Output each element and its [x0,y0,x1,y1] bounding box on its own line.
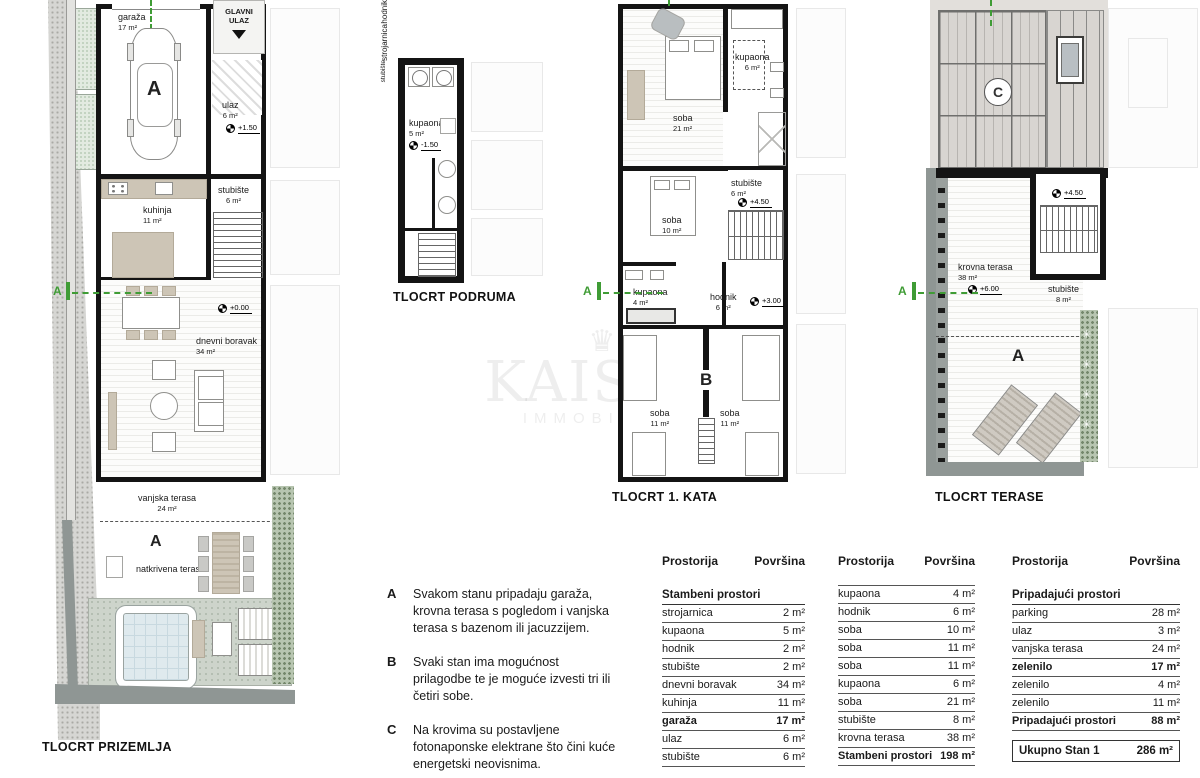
pillow [654,180,670,190]
col-header: Prostorija [1012,554,1068,570]
col-header: Prostorija [838,554,894,570]
table-row: vanjska terasa 24 m² [1012,641,1180,659]
section-marker-a: A [583,284,592,298]
level-marker: +4.50 [1052,188,1086,199]
table-row: soba 11 m² [838,640,975,658]
row-label: hodnik [662,641,694,658]
ghost-plan [792,4,852,480]
lounger [238,608,276,640]
room-label: soba [662,215,682,225]
pillow [669,40,689,52]
row-value: 17 m² [776,713,805,730]
plan-caption: TLOCRT PRIZEMLJA [42,740,172,754]
table-row: kupaona 6 m² [838,676,975,694]
retaining-wall [55,684,295,704]
col-header: Prostorija [662,554,718,570]
level-marker: +0.00 [218,303,252,314]
row-value: 28 m² [1152,605,1180,622]
bathtub [626,308,676,324]
chair [144,286,158,296]
section-bar [66,282,70,300]
row-label: ulaz [1012,623,1032,640]
plan-terasa: C +4.50 stubište 8 m² krovna terasa 38 m… [880,0,1200,520]
table-row: stubište 8 m² [838,712,975,730]
bed [623,335,657,401]
room-area: 6 m² [226,196,241,205]
note-key: C [387,722,399,773]
pool [116,606,196,688]
toilet [770,88,784,98]
side-table [212,622,232,656]
table-kat: Prostorija Površina kupaona 4 m² hodnik … [838,554,975,766]
note-key: B [387,654,399,705]
section-line [990,0,992,26]
entrance-arrow-icon [232,30,246,39]
col-header: Površina [924,554,975,570]
table-row: zelenilo 11 m² [1012,695,1180,713]
note-key: A [387,586,399,637]
row-label: kupaona [662,623,704,640]
row-label: garaža [662,713,697,730]
washer-icon [408,67,430,87]
room-label: stubište [731,178,762,188]
plan-prizemlje: GLAVNI ULAZ garaža 17 m² A ulaz 6 m² +1.… [0,0,345,778]
row-value: 24 m² [1152,641,1180,658]
room-area: 4 m² [633,298,648,307]
pillow [694,40,714,52]
round-table [150,392,178,420]
row-value: 4 m² [1158,677,1180,694]
table-row: kuhinja 11 m² [662,695,805,713]
table-row: kupaona 5 m² [662,623,805,641]
bed [632,432,666,476]
row-label: strojarnica [662,605,713,622]
roof-label: C [984,78,1012,106]
media-unit [108,392,117,450]
room-area: 6 m² [745,63,760,72]
table-row: soba 11 m² [838,658,975,676]
room-label: kuhinja [143,205,172,215]
note-item: A Svakom stanu pripadaju garaža, krovna … [387,586,627,637]
section-line [72,292,152,294]
table-row: Stambeni prostori 198 m² [838,748,975,766]
row-value: 4 m² [953,586,975,603]
chair [126,286,140,296]
table-row: parking 28 m² [1012,605,1180,623]
stairs [1040,205,1098,253]
row-label: Pripadajući prostori [1012,713,1116,730]
stairs [728,210,784,260]
outdoor-kitchen [106,556,123,578]
level-dot-icon [738,198,747,207]
glavni-ulaz-label-2: ULAZ [229,16,249,25]
row-value: 34 m² [777,677,805,694]
outdoor-chair [243,556,254,572]
outdoor-chair [243,536,254,552]
plan-caption: TLOCRT 1. KATA [612,490,717,504]
section-line [603,292,663,294]
level-marker: +4.50 [738,197,772,208]
level-marker: +1.50 [226,123,260,134]
unit-label: A [1012,346,1024,366]
row-label: soba [838,622,862,639]
unit-label: A [150,533,162,551]
room-area: 6 m² [223,111,238,120]
stairs [213,212,263,278]
pillow [674,180,690,190]
row-value: 2 m² [783,641,805,658]
chair [126,330,140,340]
path-edge [66,0,76,520]
plan-caption: TLOCRT TERASE [935,490,1044,504]
retaining-wall [932,462,1084,476]
lounger [238,644,276,676]
armchair [152,360,176,380]
room-area: 11 m² [143,216,162,225]
row-value: 2 m² [783,605,805,622]
room-label: soba [720,408,740,418]
row-value: 88 m² [1151,713,1180,730]
note-item: C Na krovima su postavljene fotonaponske… [387,722,627,773]
level-dot-icon [218,304,227,313]
table-row: kupaona 4 m² [838,586,975,604]
row-value: 21 m² [947,694,975,711]
section-bar [597,282,601,300]
row-value: 8 m² [953,712,975,729]
row-value: 6 m² [953,676,975,693]
boiler-icon [438,196,456,214]
outdoor-chair [198,576,209,592]
row-value: 6 m² [783,749,805,766]
retaining-wall [926,168,936,476]
plan-kat1: soba 21 m² kupaona 6 m² soba 10 m² stubi… [570,0,890,520]
row-label: zelenilo [1012,695,1049,712]
room-label: dnevni boravak [196,336,257,346]
sofa-seat [198,376,224,400]
drain-band [936,178,948,462]
note-item: B Svaki stan ima mogućnost prilagodbe te… [387,654,627,705]
room-area: 17 m² [118,23,137,32]
table-row: stubište 6 m² [662,749,805,767]
room-label: ulaz [222,100,239,110]
bed [745,432,779,476]
row-value: 38 m² [947,730,975,747]
outdoor-chair [198,536,209,552]
ghost-plan [465,58,550,282]
pool-step [192,620,205,658]
row-value: 6 m² [783,731,805,748]
room-area: 8 m² [1056,295,1071,304]
plan-podrum: kupaona 5 m² -1.50 hodnik strojarnica st… [380,0,580,320]
chair [144,330,158,340]
row-label: kupaona [838,676,880,693]
row-value: 6 m² [953,604,975,621]
unit-label: A [147,78,161,101]
plan-sheet: ♛ KAISER IMMOBILIEN GLAVNI ULAZ [0,0,1200,778]
armchair [152,432,176,452]
row-label: dnevni boravak [662,677,737,694]
col-header: Površina [1129,554,1180,570]
row-value: 3 m² [1158,623,1180,640]
row-label: Stambeni prostori [838,748,932,765]
glavni-ulaz-label-1: GLAVNI [225,7,253,16]
row-label: kupaona [838,586,880,603]
room-label: hodnik [380,0,389,24]
row-label: stubište [838,712,876,729]
terrace-divider [100,521,280,522]
room-label: stubište [218,185,249,195]
total-box: Ukupno Stan 1 286 m² [1012,740,1180,762]
shaft [758,112,786,166]
row-value: 11 m² [1153,695,1180,712]
ghost-plan [1108,8,1200,478]
table-row: dnevni boravak 34 m² [662,677,805,695]
section-marker-a: A [898,284,907,298]
note-text: Svakom stanu pripadaju garaža, krovna te… [413,586,618,637]
table-row: stubište 2 m² [662,659,805,677]
row-label: soba [838,658,862,675]
table-row: strojarnica 2 m² [662,605,805,623]
note-text: Na krovima su postavljene fotonaponske e… [413,722,618,773]
room-area: 21 m² [673,124,692,133]
glavni-ulaz-box: GLAVNI ULAZ [213,0,265,54]
chair [162,330,176,340]
row-label: soba [838,640,862,657]
level-marker: -1.50 [409,140,441,151]
table-row: zelenilo 17 m² [1012,659,1180,677]
table-row: hodnik 2 m² [662,641,805,659]
level-dot-icon [409,141,418,150]
row-value: 10 m² [947,622,975,639]
table-row: soba 21 m² [838,694,975,712]
level-marker: +3.00 [750,296,784,307]
level-dot-icon [226,124,235,133]
variant-label: B [697,370,715,390]
sink [625,270,643,280]
table-row: garaža 17 m² [662,713,805,731]
row-label: parking [1012,605,1048,622]
table-row: hodnik 6 m² [838,604,975,622]
table-section: Stambeni prostori [662,587,805,605]
room-area: 24 m² [157,504,176,513]
washer-icon [432,67,454,87]
notes: A Svakom stanu pripadaju garaža, krovna … [387,586,627,778]
table-stambeni: Prostorija Površina Stambeni prostori st… [662,554,805,767]
toilet [650,270,664,280]
section-line [150,0,152,30]
table-row: ulaz 6 m² [662,731,805,749]
chair [162,286,176,296]
room-label: stubište [380,60,387,82]
row-label: soba [838,694,862,711]
room-label: krovna terasa [958,262,1013,272]
outdoor-table [212,532,240,594]
room-label: kupaona [735,52,770,62]
table-row: ulaz 3 m² [1012,623,1180,641]
ghost-plan [266,0,344,520]
room-area: 10 m² [662,226,681,235]
row-value: 198 m² [940,748,975,765]
room-label: soba [673,113,693,123]
row-label: stubište [662,659,700,676]
room-label: stubište [1048,284,1079,294]
bathtub [731,9,783,29]
room-area: 34 m² [196,347,215,356]
wardrobe [627,70,645,120]
kitchen-island [112,232,174,278]
section-marker-a: A [53,284,62,298]
terrace-divider [936,336,1084,337]
stove-icon [108,182,128,195]
row-label: krovna terasa [838,730,905,747]
stairs [418,233,456,277]
section-line [918,292,978,294]
seam-roof [1046,10,1104,168]
row-value: 5 m² [783,623,805,640]
level-dot-icon [750,297,759,306]
room-area: 5 m² [409,129,424,138]
col-header: Površina [754,554,805,570]
outdoor-chair [198,556,209,572]
room-area: 11 m² [650,419,669,428]
boiler-icon [438,160,456,178]
room-label: kupaona [409,118,444,128]
skylight [1056,36,1084,84]
shower [440,118,456,134]
room-label: hodnik [710,292,737,302]
room-label: strojarnica [380,24,389,61]
note-text: Svaki stan ima mogućnost prilagodbe te j… [413,654,618,705]
future-stairs [698,418,715,464]
kitchen-sink [155,182,173,195]
room-area: 38 m² [958,273,977,282]
row-value: 2 m² [783,659,805,676]
row-label: kuhinja [662,695,697,712]
outdoor-chair [243,576,254,592]
table-pripadajuci: Prostorija Površina Pripadajući prostori… [1012,554,1180,762]
row-label: zelenilo [1012,659,1052,676]
plants-strip [272,486,294,684]
row-label: stubište [662,749,700,766]
row-value: 11 m² [778,695,805,712]
section-bar [912,282,916,300]
room-label: vanjska terasa [138,493,196,503]
row-label: vanjska terasa [1012,641,1083,658]
row-value: 17 m² [1151,659,1180,676]
room-label: garaža [118,12,146,22]
zelenilo-panel [72,8,99,90]
room-area: 6 m² [716,303,731,312]
row-value: 11 m² [948,658,975,675]
sink [770,62,784,72]
table-row: krovna terasa 38 m² [838,730,975,748]
room-label: natkrivena terasa [136,564,205,574]
room-area: 11 m² [720,419,739,428]
row-label: ulaz [662,731,682,748]
room-label: soba [650,408,670,418]
table-row: zelenilo 4 m² [1012,677,1180,695]
dining-table [122,297,180,329]
total-value: 286 m² [1137,745,1173,757]
plants-strip: ✳✳✳✳ [1080,310,1098,462]
bed [742,335,780,401]
level-dot-icon [1052,189,1061,198]
row-label: hodnik [838,604,870,621]
plan-caption: TLOCRT PODRUMA [393,290,516,304]
table-row: Pripadajući prostori 88 m² [1012,713,1180,731]
table-section: Pripadajući prostori [1012,587,1180,605]
row-value: 11 m² [948,640,975,657]
total-label: Ukupno Stan 1 [1019,745,1100,757]
sofa-seat [198,402,224,426]
table-row: soba 10 m² [838,622,975,640]
garage-door [112,4,200,10]
row-label: zelenilo [1012,677,1049,694]
